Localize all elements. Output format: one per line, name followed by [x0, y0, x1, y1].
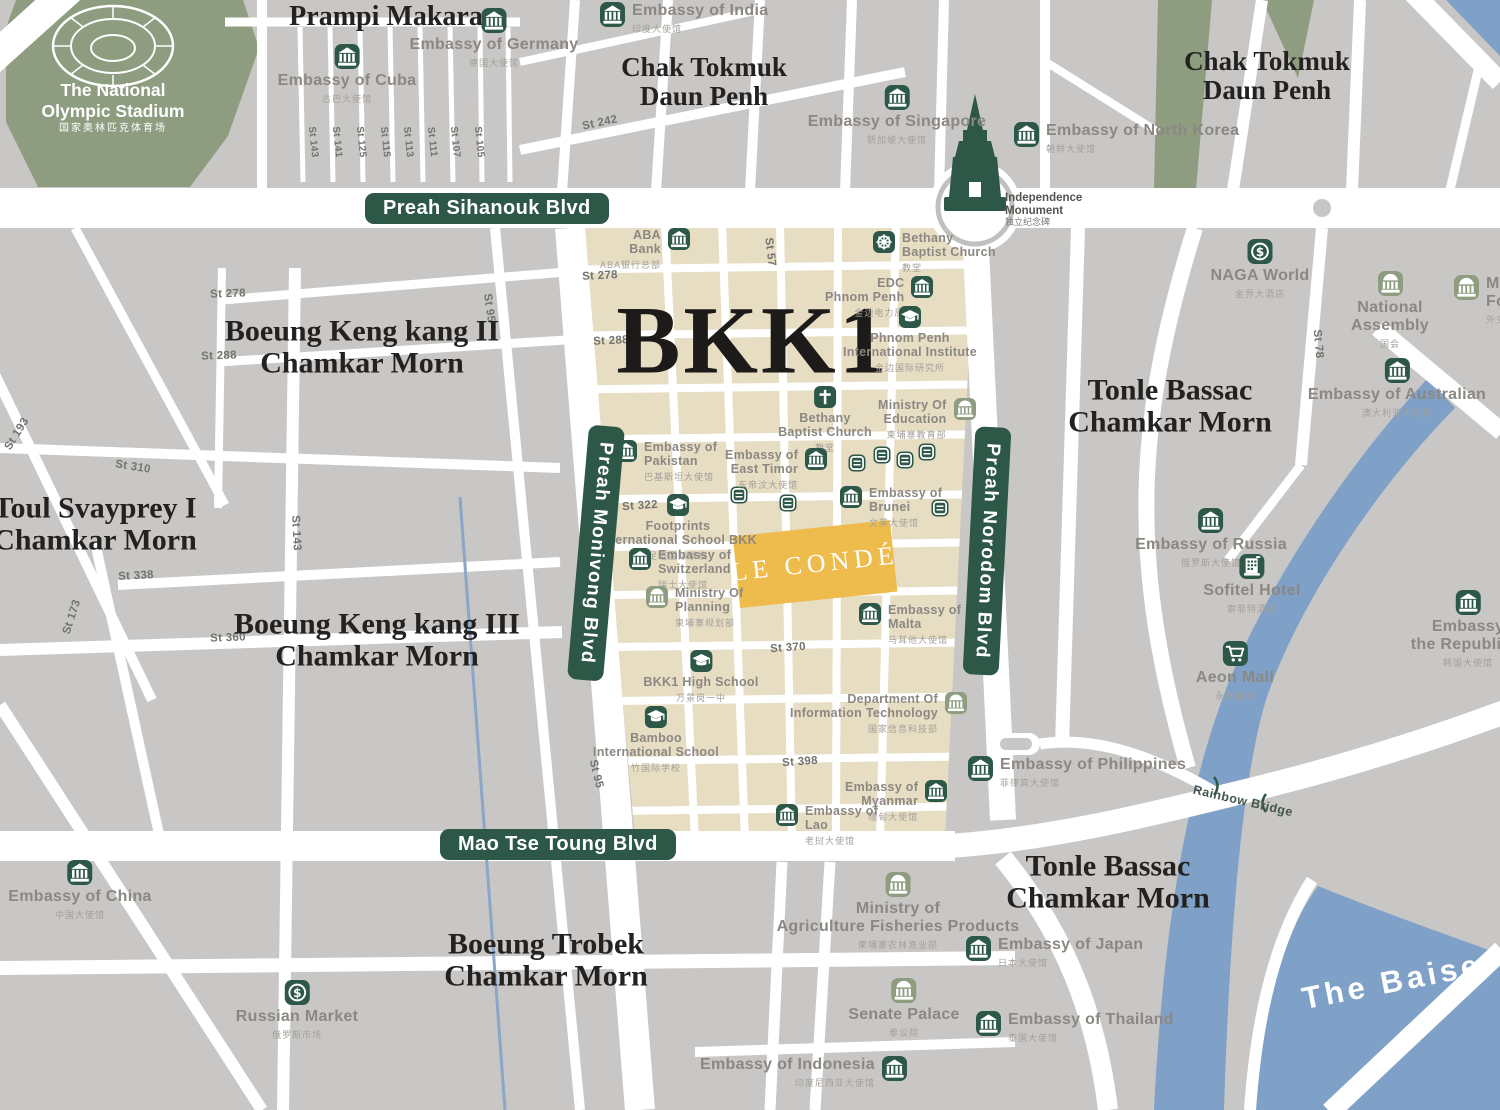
district-toul-svayprey: Toul Svayprey IChamkar Morn [0, 493, 197, 558]
poi-senate-palace: Senate Palace参议院 [848, 978, 960, 1039]
district-boeung-trobek: Boeung TrobekChamkar Morn [444, 929, 648, 994]
church-cross-icon [814, 386, 836, 408]
edge-marker [1487, 195, 1500, 221]
poi-bethany-baptist-church-north: BethanyBaptist Church教堂 [873, 231, 996, 274]
district-tonle-bassac-2: Tonle BassacChamkar Morn [1006, 851, 1210, 916]
embassy-icon [334, 44, 359, 69]
poi-embassy-of-thailand: Embassy of Thailand泰国大使馆 [976, 1011, 1174, 1044]
embassy-icon [968, 756, 993, 781]
dollar-icon [285, 980, 310, 1005]
district-chak-tokmuk-1: Chak TokmukDaun Penh [621, 53, 787, 111]
poi-embassy-of-brunei: Embassy ofBrunei文莱大使馆 [840, 486, 942, 529]
shop-icon [919, 444, 936, 461]
shop-icon [849, 455, 866, 472]
church-wheel-icon [873, 231, 895, 253]
bank-icon [668, 228, 690, 250]
embassy-icon [966, 936, 991, 961]
poi-bkk1-high-school: BKK1 High School万景岗一中 [643, 650, 758, 704]
poi-bamboo-international-school: BambooInternational School竹国际学校 [593, 706, 719, 774]
roundabout-capsule [992, 733, 1040, 755]
poi-embassy-of-india: Embassy of India印度大使馆 [600, 2, 768, 35]
poi-aeon-mall: Aeon Mall永旺商场 [1196, 641, 1274, 702]
street-label: St 143 [289, 515, 303, 551]
poi-embassy-of-indonesia: Embassy of Indonesia印度尼西亚大使馆 [700, 1056, 907, 1089]
school-icon [645, 706, 667, 728]
district-tonle-bassac-1: Tonle BassacChamkar Morn [1068, 375, 1272, 440]
shop-icon [874, 447, 891, 464]
street-label: St 398 [782, 755, 818, 769]
embassy-icon [776, 804, 798, 826]
embassy-icon [976, 1011, 1001, 1036]
embassy-icon [925, 780, 947, 802]
embassy-icon [1014, 122, 1039, 147]
embassy-icon [859, 603, 881, 625]
school-icon [667, 494, 689, 516]
embassy-icon [67, 860, 92, 885]
poi-embassy-of-korea: Embassythe Republic o韩国大使馆 [1411, 590, 1500, 669]
independence-monument-label: Independence Monument 独立纪念碑 [1005, 192, 1082, 228]
embassy-icon [600, 2, 625, 27]
ministry-icon [892, 978, 917, 1003]
dollar-icon [1248, 239, 1273, 264]
district-chak-tokmuk-2: Chak TokmukDaun Penh [1184, 47, 1350, 105]
boulevard-dot [1313, 199, 1331, 217]
embassy-icon [1198, 508, 1223, 533]
district-bkk3: Boeung Keng kang IIIChamkar Morn [234, 609, 520, 674]
embassy-icon [1385, 358, 1410, 383]
poi-embassy-of-cuba: Embassy of Cuba古巴大使馆 [278, 44, 417, 105]
street-label: St 338 [118, 569, 154, 583]
poi-aba-bank: ABABankABA银行总部 [600, 228, 690, 271]
poi-naga-world: NAGA World金界大酒店 [1211, 239, 1310, 300]
mao-tse-toung-blvd-sign: Mao Tse Toung Blvd [440, 829, 676, 860]
poi-embassy-of-north-korea: Embassy of North Korea朝鲜大使馆 [1014, 122, 1239, 155]
ministry-icon [945, 692, 967, 714]
poi-embassy-of-malta: Embassy ofMalta马耳他大使馆 [859, 603, 961, 646]
embassy-icon [629, 548, 651, 570]
utility-building-icon [911, 276, 933, 298]
embassy-icon [840, 486, 862, 508]
poi-ministry-of-planning: Ministry OfPlanning柬埔寨规划部 [646, 586, 744, 629]
poi-embassy-of-lao: Embassy ofLao老挝大使馆 [776, 804, 878, 847]
ministry-icon [886, 872, 911, 897]
embassy-icon [1456, 590, 1481, 615]
shop-icon [897, 452, 914, 469]
map-canvas: The National Olympic Stadium 国家奥林匹克体育场 I… [0, 0, 1500, 1110]
street-label: St 278 [582, 269, 618, 283]
poi-bethany-baptist-church-south: BethanyBaptist Church教堂 [778, 386, 872, 454]
poi-ministry-of-education: Ministry OfEducation柬埔寨教育部 [878, 398, 976, 441]
embassy-icon [482, 8, 507, 33]
ministry-icon [1378, 271, 1403, 296]
ministry-icon [1454, 275, 1479, 300]
district-bkk2: Boeung Keng kang IIChamkar Morn [225, 316, 499, 381]
embassy-icon [882, 1056, 907, 1081]
poi-embassy-of-germany: Embassy of Germany德国大使馆 [409, 8, 578, 69]
hotel-icon [1240, 554, 1265, 579]
school-icon [690, 650, 712, 672]
embassy-icon [885, 85, 910, 110]
street-label: St 78 [1311, 329, 1325, 359]
poi-phnom-penh-international-institute: Phnom PenhInternational Institute金边国际研究所 [843, 306, 977, 374]
school-icon [899, 306, 921, 328]
poi-embassy-of-philippines: Embassy of Philippines菲律宾大使馆 [968, 756, 1186, 789]
street-label: St 370 [770, 641, 806, 655]
embassy-icon [805, 448, 827, 470]
ministry-icon [646, 586, 668, 608]
poi-russian-market: Russian Market俄罗斯市场 [236, 980, 358, 1041]
poi-department-of-information-technology: Department OfInformation Technology国家信息科… [790, 692, 967, 735]
poi-embassy-of-east-timor: Embassy ofEast Timor东帝汶大使馆 [725, 448, 827, 491]
cart-icon [1222, 641, 1247, 666]
poi-embassy-of-pakistan: Embassy ofPakistan巴基斯坦大使馆 [615, 440, 717, 483]
sihanouk-blvd-sign: Preah Sihanouk Blvd [365, 193, 609, 224]
poi-ministry-of-foreign-affairs: MiFo外交 [1454, 275, 1500, 326]
shop-icon [780, 495, 797, 512]
olympic-stadium-label: The National Olympic Stadium 国家奥林匹克体育场 [42, 80, 185, 135]
poi-embassy-of-china: Embassy of China中国大使馆 [8, 860, 152, 921]
poi-national-assembly: NationalAssembly国会 [1351, 271, 1429, 350]
poi-embassy-of-australia: Embassy of Australian澳大利亚大使馆 [1308, 358, 1486, 419]
poi-sofitel-hotel: Sofitel Hotel索菲特酒店 [1203, 554, 1300, 615]
poi-embassy-of-japan: Embassy of Japan日本大使馆 [966, 936, 1143, 969]
street-label: St 278 [210, 287, 246, 300]
poi-embassy-of-switzerland: Embassy ofSwitzerland瑞士大使馆 [629, 548, 731, 591]
poi-embassy-of-singapore: Embassy of Singapore新加坡大使馆 [808, 85, 987, 146]
ministry-icon [954, 398, 976, 420]
